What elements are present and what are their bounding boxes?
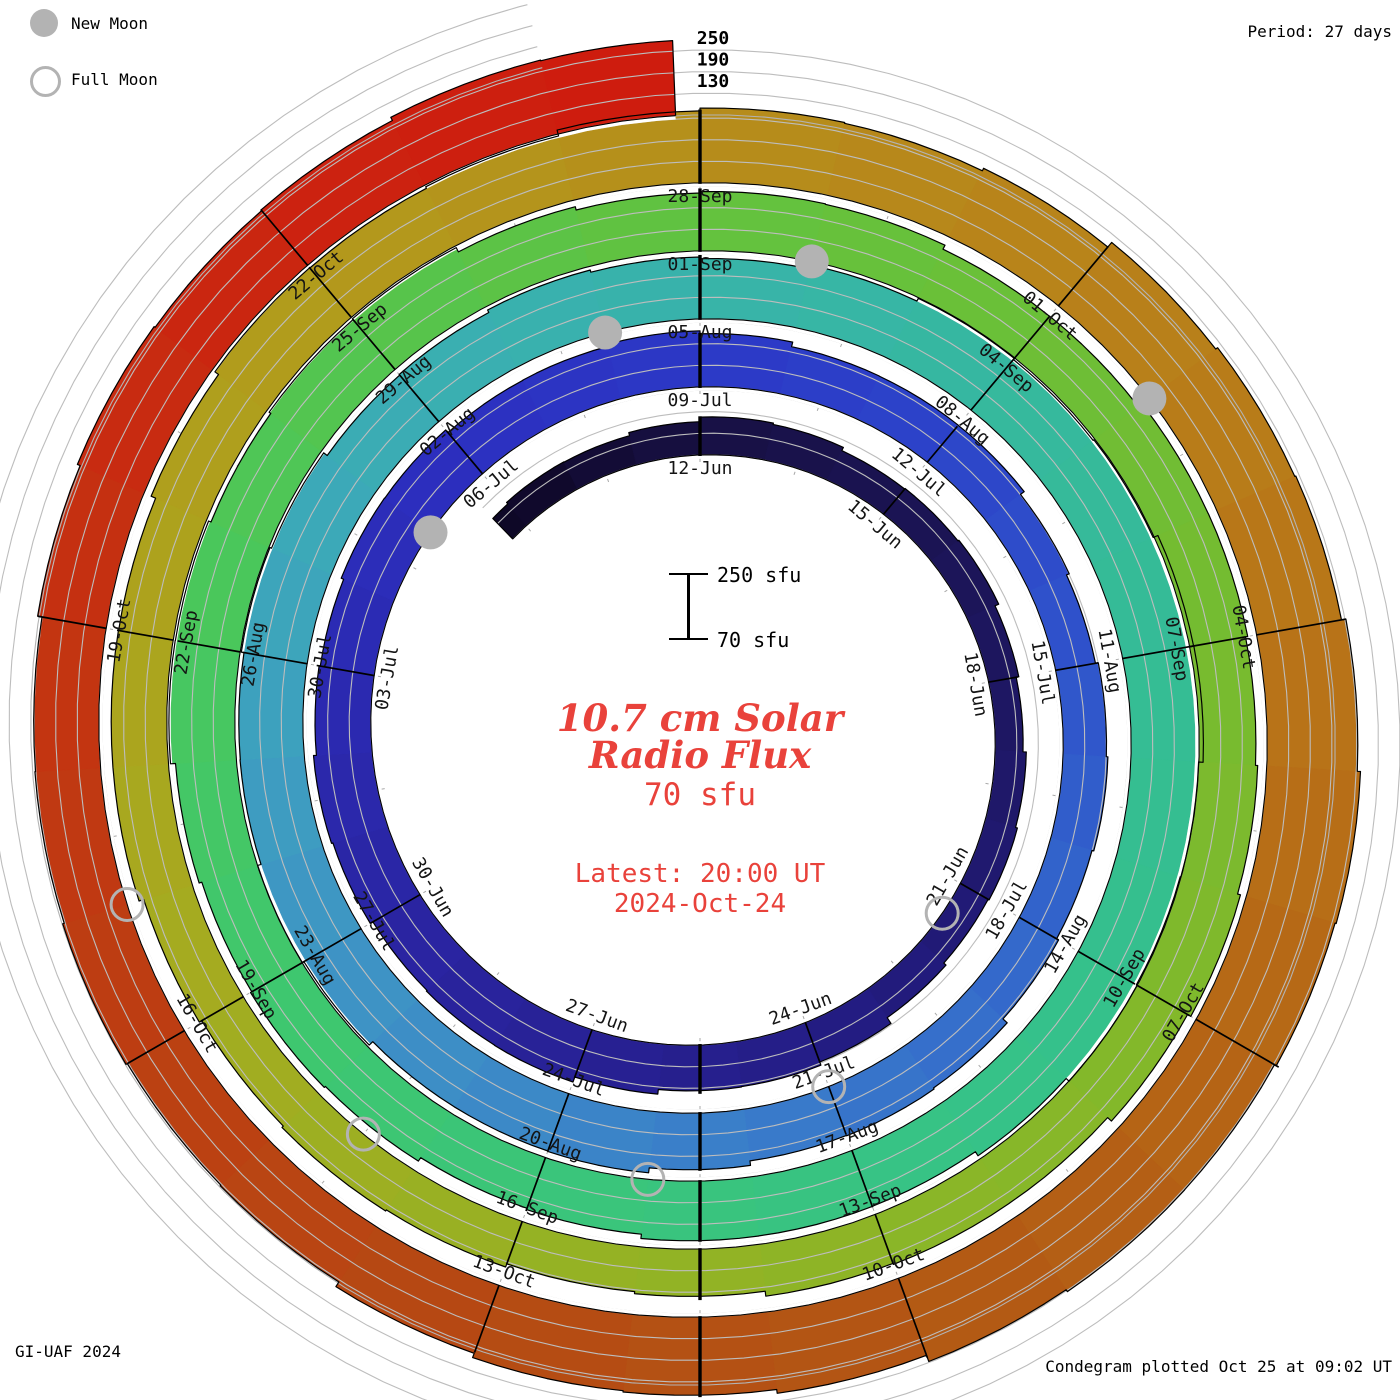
new-moon-label: New Moon: [71, 14, 148, 33]
scale-bar-top-tick: [669, 573, 708, 575]
condegram-page: { "header": { "period_label": "Period: 2…: [0, 0, 1400, 1400]
date-label-09-Jul: 09-Jul: [667, 390, 732, 411]
chart-title-line2: Radio Flux: [0, 733, 1400, 777]
radial-axis-labels: 250190130: [697, 28, 730, 92]
date-label-05-Aug: 05-Aug: [667, 322, 732, 343]
radial-axis-label-190: 190: [697, 50, 730, 71]
plotted-timestamp-label: Condegram plotted Oct 25 at 09:02 UT: [792, 1357, 1392, 1376]
new-moon-marker-02-Oct: [1132, 381, 1166, 415]
baseline-value-label: 70 sfu: [0, 777, 1400, 813]
scale-bar-top-label: 250 sfu: [717, 563, 801, 587]
date-label-01-Sep: 01-Sep: [667, 254, 732, 275]
new-moon-marker-04-Aug: [588, 316, 622, 350]
latest-time-label: Latest: 20:00 UT: [0, 859, 1400, 889]
latest-date-label: 2024-Oct-24: [0, 889, 1400, 919]
period-label: Period: 27 days: [1092, 22, 1392, 41]
scale-bar: [687, 574, 690, 639]
new-moon-marker-05-Jul: [414, 515, 448, 549]
full-moon-label: Full Moon: [71, 70, 158, 89]
credit-label: GI-UAF 2024: [15, 1342, 121, 1361]
full-moon-icon: [30, 66, 61, 97]
date-label-12-Jun: 12-Jun: [667, 458, 732, 479]
radial-axis-label-130: 130: [697, 71, 730, 92]
new-moon-icon: [30, 9, 58, 37]
new-moon-marker-02-Sep: [795, 244, 829, 278]
scale-bar-bottom-label: 70 sfu: [717, 628, 789, 652]
scale-bar-bottom-tick: [669, 638, 708, 640]
date-label-28-Sep: 28-Sep: [667, 186, 732, 207]
radial-axis-label-250: 250: [697, 28, 730, 49]
